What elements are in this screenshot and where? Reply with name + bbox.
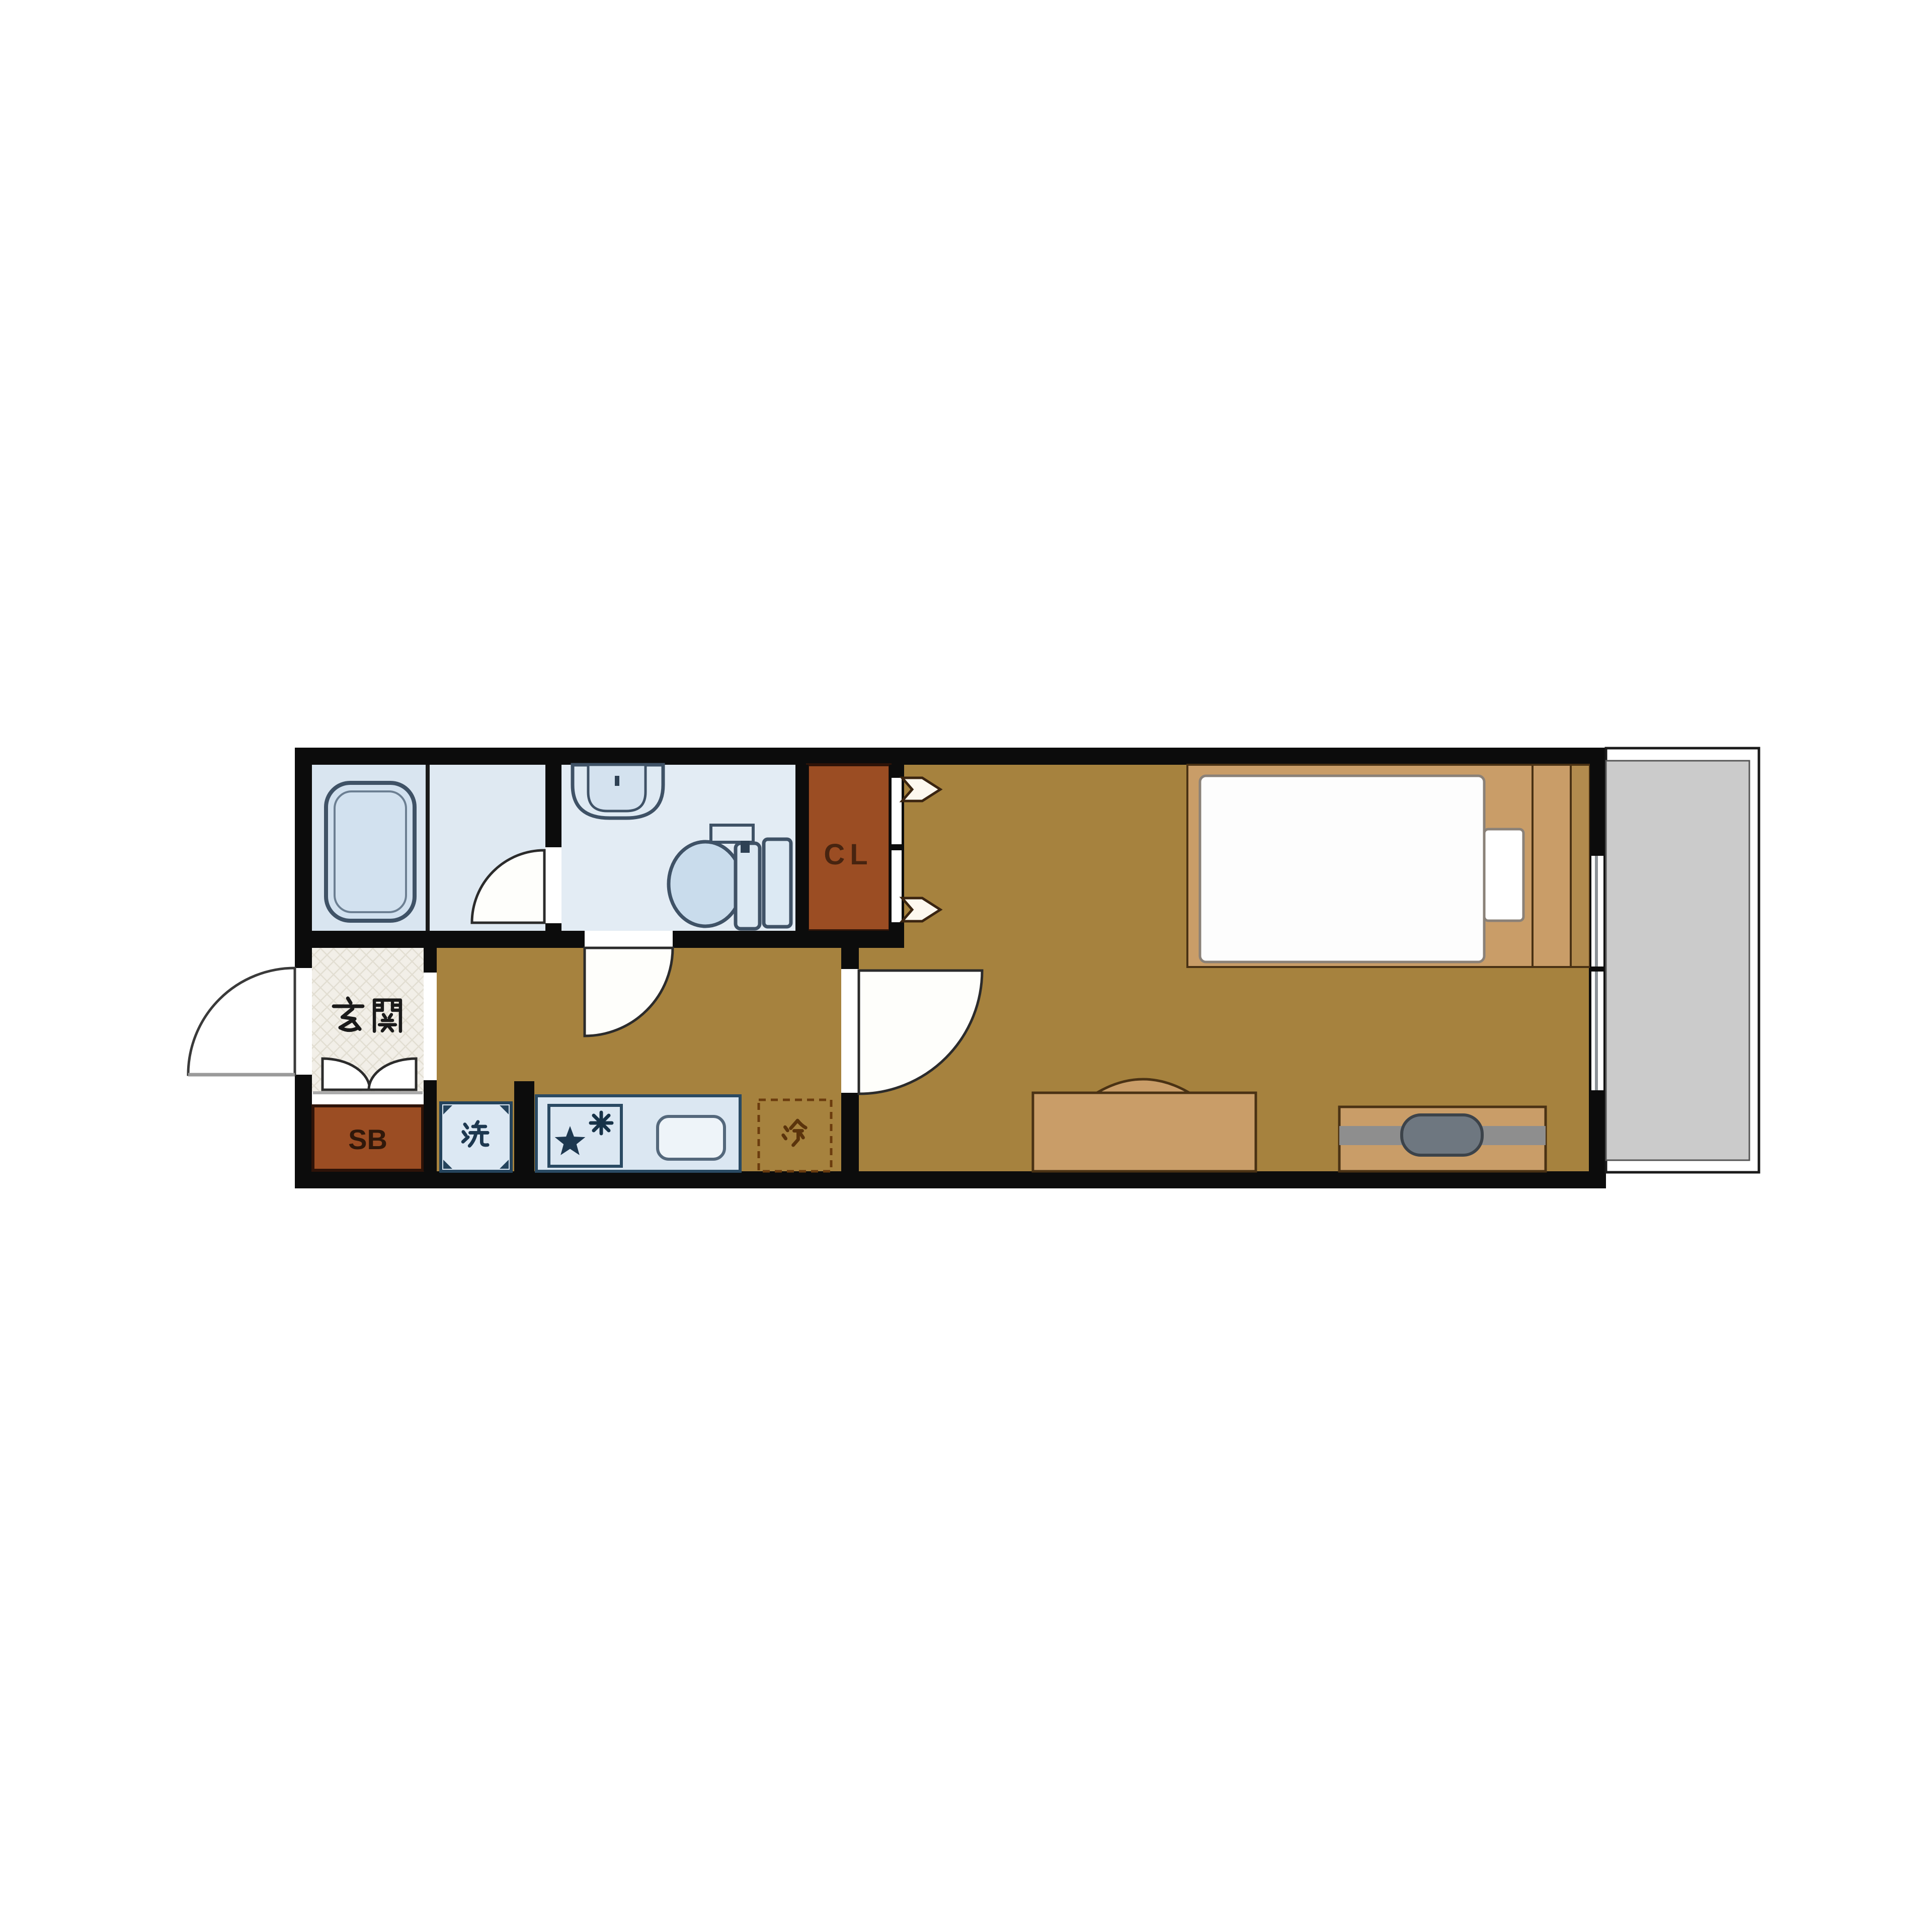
svg-text:SB: SB: [348, 1123, 387, 1155]
svg-text:CL: CL: [824, 838, 872, 871]
